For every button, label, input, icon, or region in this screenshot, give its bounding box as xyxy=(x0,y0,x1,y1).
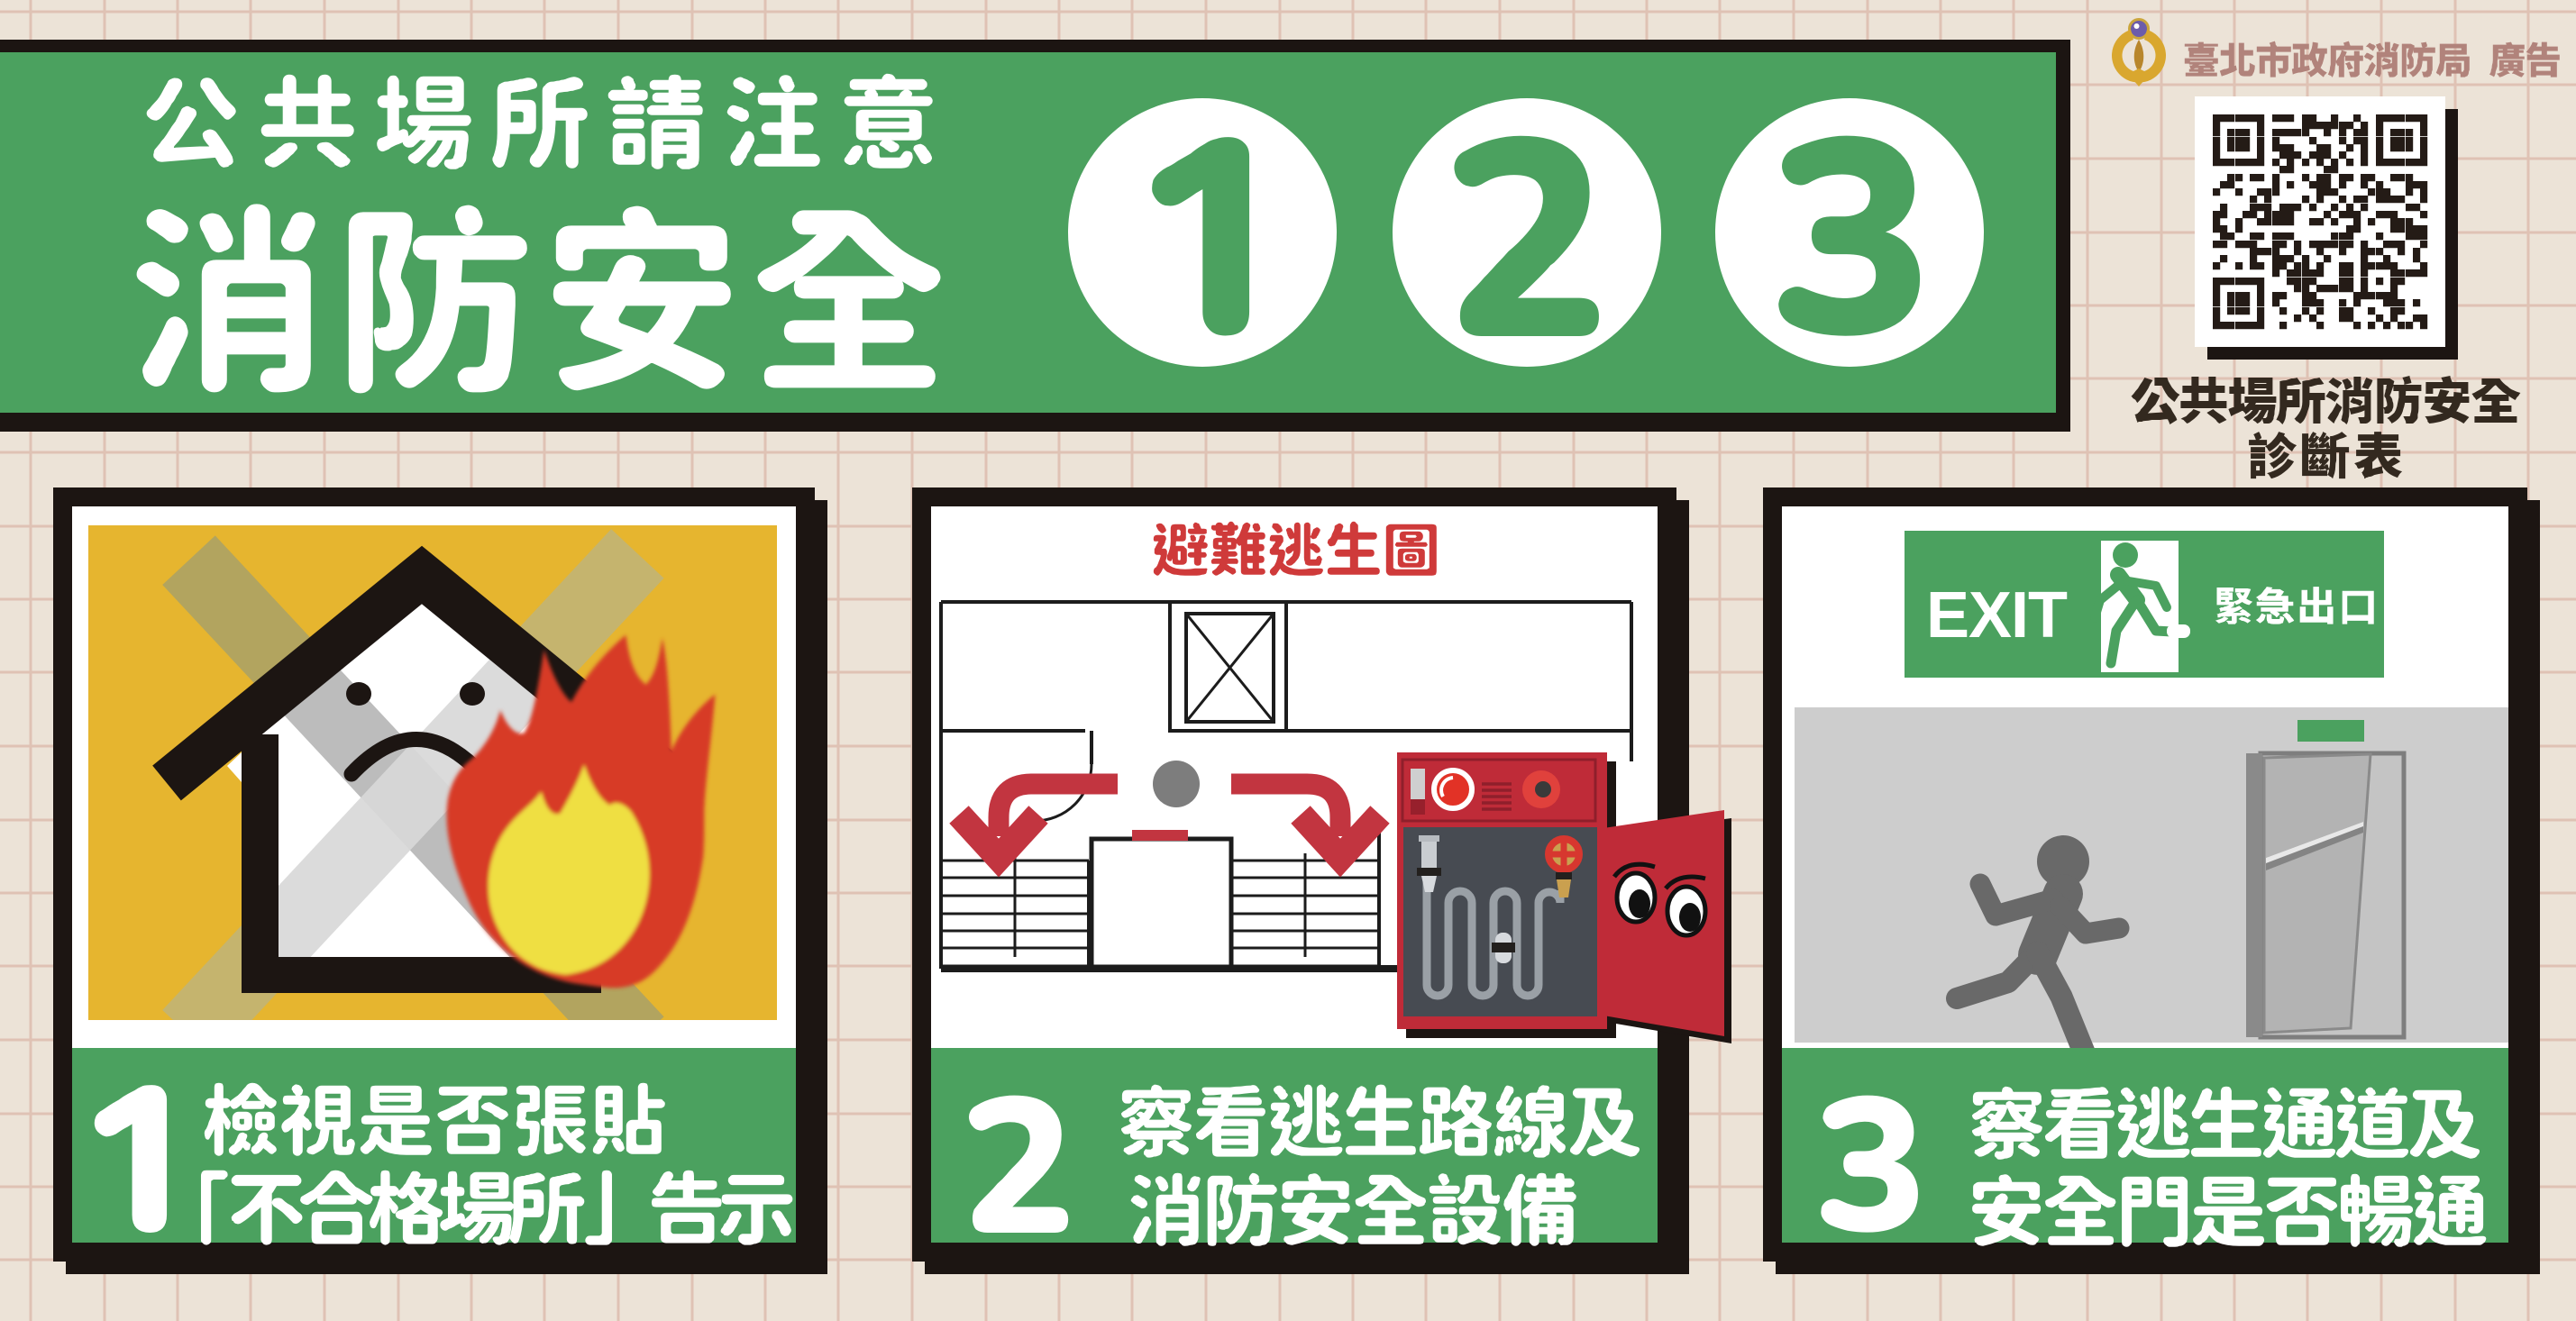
svg-text:EXIT: EXIT xyxy=(1926,579,2068,651)
